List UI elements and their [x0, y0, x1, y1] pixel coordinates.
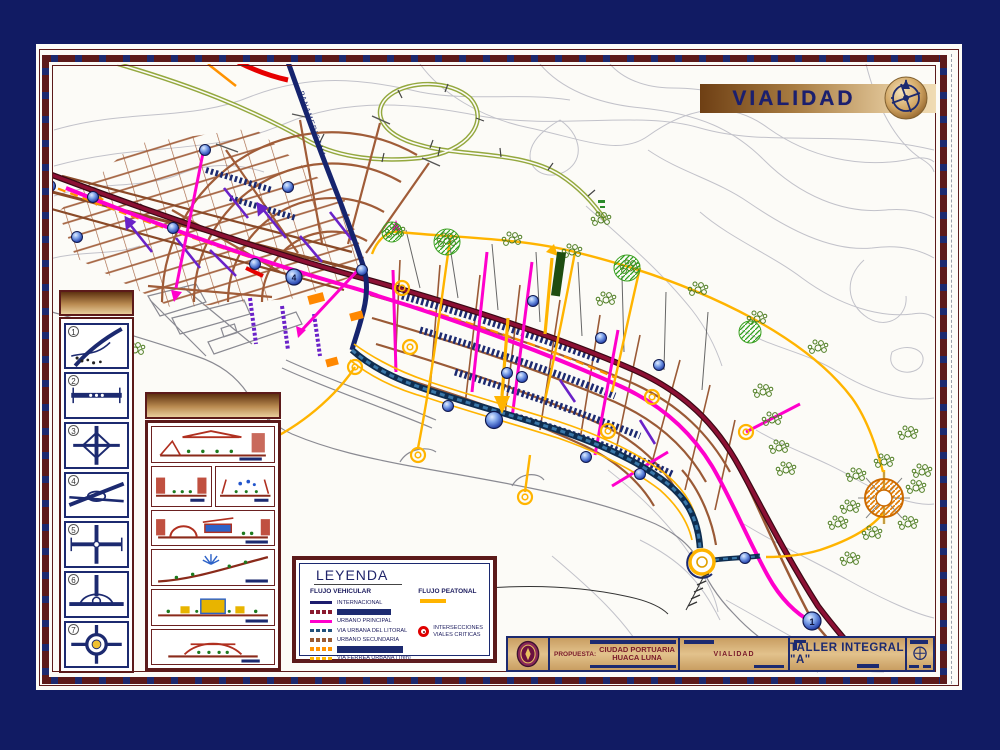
swatch-via-ferrea — [310, 657, 332, 661]
legend-item-internacional: INTERNACIONAL — [310, 598, 414, 607]
road-section-icon — [152, 511, 274, 546]
section-cell-2a[interactable] — [151, 466, 212, 507]
decor-bar — [754, 665, 784, 669]
section-cell-2 — [151, 466, 275, 507]
legend-item-nacional — [310, 607, 414, 616]
legend-box: LEYENDA FLUJO VEHICULAR INTERNACIONAL UR… — [292, 556, 497, 663]
studio-name: TALLER INTEGRAL "A" — [790, 642, 905, 666]
frame-band-bottom — [42, 677, 947, 684]
decor-bar — [923, 665, 931, 669]
title-block: PROPUESTA: CIUDAD PORTUARIA HUACA LUNA V… — [506, 636, 935, 672]
node-4: 4 — [286, 269, 302, 285]
intersections-panel-header — [59, 290, 134, 316]
legend-title: LEYENDA — [314, 567, 402, 585]
section-cell-5[interactable] — [151, 589, 275, 626]
frame-band-right — [940, 55, 947, 684]
swatch-urbano-secundaria — [310, 638, 332, 642]
road-section-icon — [152, 630, 274, 665]
legend-item-litoral: VIA URBANA DEL LITORAL — [310, 626, 414, 635]
redacted-label-bar — [337, 646, 403, 653]
pedestrian-paths — [248, 232, 884, 557]
swatch-orange — [310, 647, 332, 651]
section-cell-6[interactable] — [151, 629, 275, 666]
intersection-cell-1[interactable]: 1 — [64, 323, 129, 370]
plaza-circle — [840, 454, 926, 539]
section-cell-1[interactable] — [151, 426, 275, 463]
north-compass-icon — [882, 74, 930, 122]
sheet-name: VIALIDAD — [713, 651, 754, 658]
redacted-label-bar — [337, 609, 391, 615]
intersection-cell-2[interactable]: 2 — [64, 372, 129, 419]
legend-item-via-ferrea: VIA FERREA URBANA (Tren) — [310, 654, 414, 663]
critical-intersection-icon — [418, 626, 429, 637]
intersection-cell-4[interactable]: 4 — [64, 472, 129, 519]
studio-cell: TALLER INTEGRAL "A" — [790, 638, 905, 670]
intersections-panel: 1 2 3 — [59, 290, 134, 674]
decor-bar — [684, 640, 714, 644]
road-section-icon — [152, 427, 274, 462]
swatch-peatonal — [420, 599, 446, 603]
proposal-label: PROPUESTA: — [554, 651, 596, 658]
intersection-cell-3[interactable]: 3 — [64, 422, 129, 469]
decor-bar — [909, 665, 919, 669]
intersection-cell-7[interactable]: 7 — [64, 621, 129, 668]
sheet-name-cell: VIALIDAD — [680, 638, 788, 670]
svg-text:1: 1 — [809, 617, 815, 628]
seal-cell — [907, 638, 933, 670]
logo-cell — [508, 638, 548, 670]
legend-vehicular-heading: FLUJO VEHICULAR — [310, 588, 414, 595]
drawing-title: VIALIDAD — [732, 87, 903, 111]
decor-bar — [794, 640, 797, 650]
node-1: 1 — [803, 612, 821, 630]
legend-item-urbano-principal: URBANO PRINCIPAL — [310, 617, 414, 626]
road-sections-panel — [145, 392, 281, 673]
intersection-cell-5[interactable]: 5 — [64, 521, 129, 568]
project-cell: PROPUESTA: CIUDAD PORTUARIA HUACA LUNA — [550, 638, 678, 670]
swatch-urbano-principal — [310, 620, 332, 623]
decor-bar — [857, 664, 879, 668]
legend-item-orange — [310, 644, 414, 653]
intersection-number: 4 — [68, 475, 79, 486]
swatch-litoral — [310, 629, 332, 633]
legend-item-urbano-secundaria: URBANO SECUNDARIA — [310, 635, 414, 644]
swatch-internacional — [310, 601, 332, 605]
intersection-cell-6[interactable]: 6 — [64, 571, 129, 618]
intersection-number: 1 — [68, 326, 79, 337]
frame-band-left — [42, 55, 49, 684]
intersection-number: 7 — [68, 624, 79, 635]
project-name: CIUDAD PORTUARIA HUACA LUNA — [596, 646, 678, 663]
road-section-icon — [152, 590, 274, 625]
legend-item-critical-intersections: INTERSECCIONES VIALES CRITICAS — [418, 625, 483, 638]
intersection-number: 3 — [68, 425, 79, 436]
road-section-icon — [152, 550, 274, 585]
svg-text:4: 4 — [292, 273, 297, 283]
fold-mark — [951, 54, 952, 684]
roundabout — [687, 550, 714, 578]
road-section-icon — [152, 467, 211, 506]
section-cell-3[interactable] — [151, 510, 275, 547]
swatch-nacional — [310, 610, 332, 614]
frame-band-top — [42, 55, 947, 62]
decor-bar — [590, 665, 676, 669]
road-section-icon — [216, 467, 275, 506]
sections-panel-header — [145, 392, 281, 419]
section-cell-4[interactable] — [151, 549, 275, 586]
university-seal-icon — [508, 638, 548, 670]
decor-bar — [590, 640, 676, 644]
cad-viewport: PANAMERICANA — [0, 0, 1000, 750]
legend-pedestrian-heading: FLUJO PEATONAL — [418, 588, 483, 595]
section-cell-2b[interactable] — [215, 466, 276, 507]
